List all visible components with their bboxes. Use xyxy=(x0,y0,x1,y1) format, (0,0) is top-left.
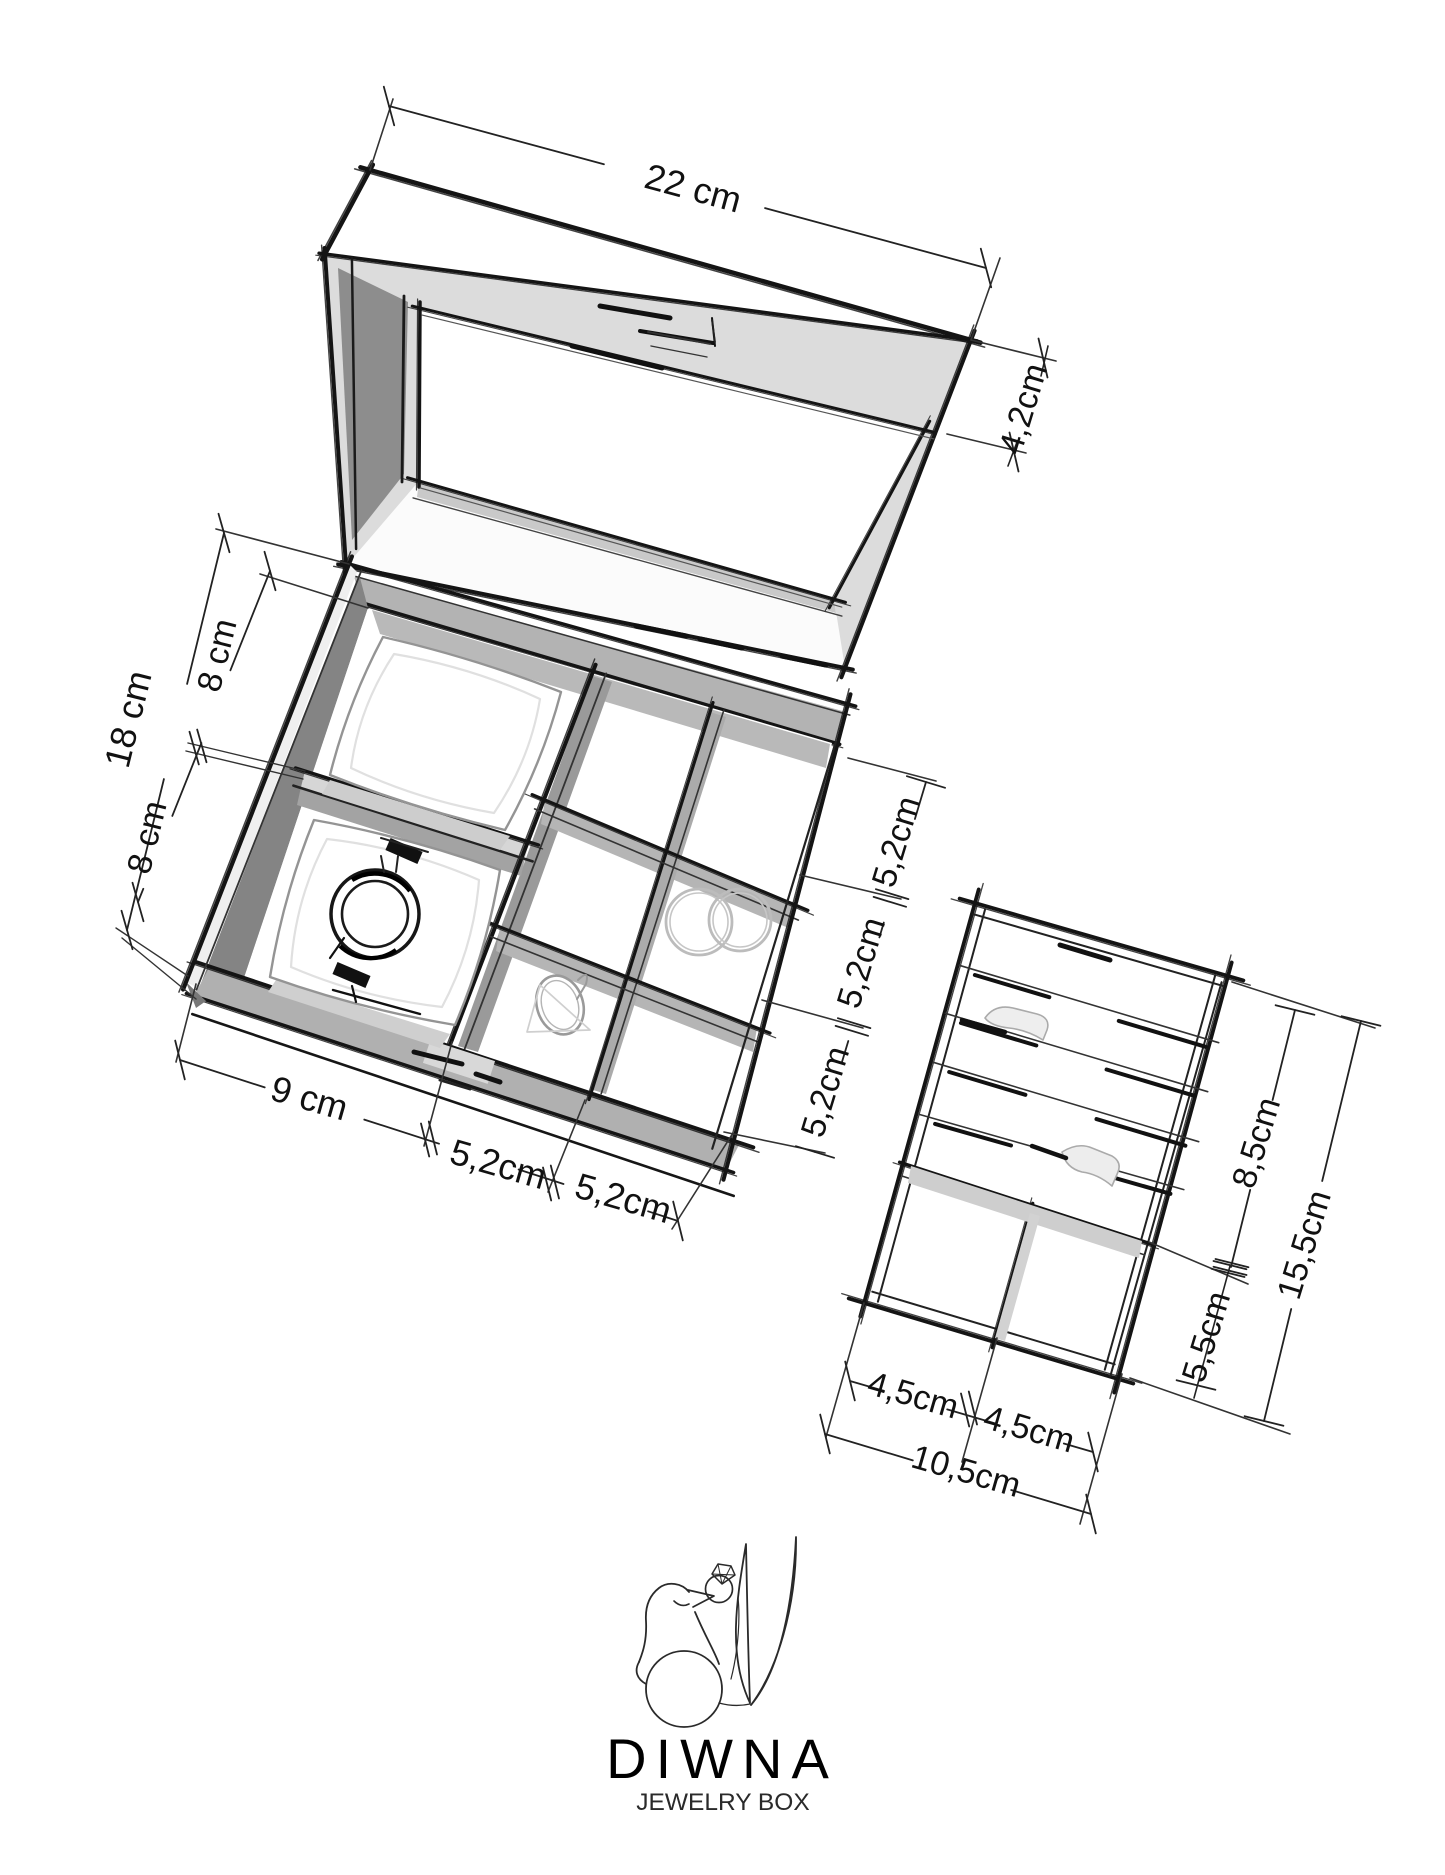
svg-text:JEWELRY BOX: JEWELRY BOX xyxy=(636,1789,809,1816)
svg-text:DIWNA: DIWNA xyxy=(606,1727,838,1790)
